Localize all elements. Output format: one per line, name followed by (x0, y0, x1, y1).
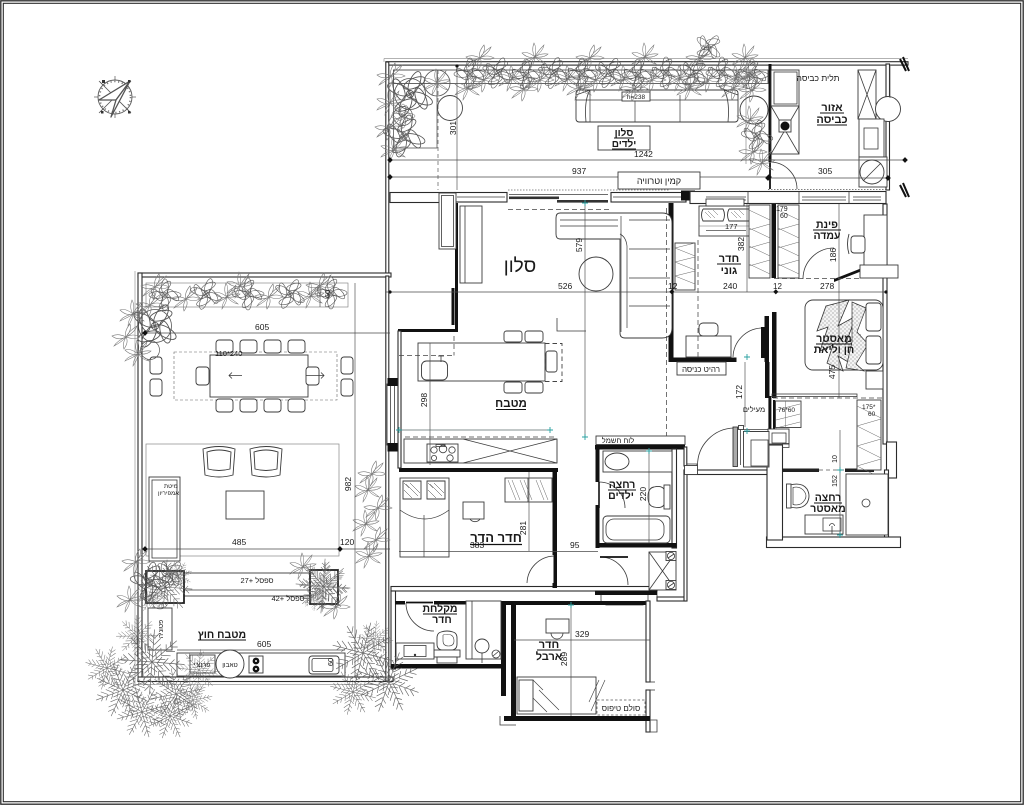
svg-text:605: 605 (255, 322, 269, 332)
svg-text:ספסל +27: ספסל +27 (240, 576, 273, 585)
svg-text:95: 95 (570, 540, 580, 550)
svg-text:חן וליאת: חן וליאת (814, 344, 854, 356)
svg-text:פרנצ'י: פרנצ'י (194, 662, 210, 669)
svg-text:186: 186 (828, 248, 838, 262)
svg-text:175*: 175* (862, 404, 876, 411)
svg-text:240: 240 (723, 281, 737, 291)
svg-text:10: 10 (832, 455, 839, 463)
svg-text:12: 12 (773, 282, 782, 291)
svg-text:ילדים: ילדים (608, 490, 634, 502)
svg-text:סלון: סלון (504, 256, 536, 277)
svg-text:סלון: סלון (615, 127, 634, 139)
svg-text:פטוניה: פטוניה (158, 620, 165, 638)
svg-text:60: 60 (780, 213, 788, 220)
svg-text:298: 298 (419, 393, 429, 407)
svg-text:177: 177 (725, 222, 738, 231)
svg-text:937: 937 (572, 166, 586, 176)
svg-text:485: 485 (232, 537, 246, 547)
svg-text:152: 152 (832, 475, 839, 487)
svg-text:חדר: חדר (539, 639, 559, 651)
svg-text:לוח חשמל: לוח חשמל (602, 436, 634, 445)
svg-text:305: 305 (818, 166, 832, 176)
svg-text:חדר: חדר (432, 614, 452, 626)
svg-text:605: 605 (257, 639, 271, 649)
svg-text:חדר הדר: חדר הדר (470, 530, 522, 545)
svg-text:עמדה: עמדה (813, 230, 840, 242)
svg-text:220: 220 (638, 487, 648, 501)
svg-text:60: 60 (326, 658, 335, 666)
svg-text:מעילים: מעילים (743, 405, 765, 414)
svg-text:526: 526 (558, 281, 572, 291)
svg-text:982: 982 (343, 477, 353, 491)
svg-text:110*240: 110*240 (215, 349, 242, 358)
svg-text:תלית כביסה: תלית כביסה (797, 73, 840, 83)
svg-text:h=238: h=238 (627, 94, 646, 101)
svg-text:סולם טיפוס: סולם טיפוס (602, 704, 640, 713)
svg-text:מאסטר: מאסטר (810, 503, 845, 515)
svg-text:179: 179 (776, 206, 788, 213)
svg-text:301: 301 (448, 121, 458, 135)
svg-text:קמין וטרוויה: קמין וטרוויה (637, 176, 681, 186)
svg-text:60: 60 (868, 411, 876, 418)
svg-text:76*60: 76*60 (778, 407, 795, 414)
svg-text:מיטת: מיטת (164, 484, 178, 490)
svg-text:ספסל +42: ספסל +42 (271, 594, 304, 603)
svg-text:ילדים: ילדים (612, 138, 637, 150)
svg-text:329: 329 (575, 629, 589, 639)
svg-text:12: 12 (668, 281, 678, 291)
svg-text:579: 579 (574, 238, 584, 252)
svg-text:אמפיריון: אמפיריון (158, 491, 179, 497)
svg-text:278: 278 (820, 281, 834, 291)
svg-text:475: 475 (827, 365, 837, 379)
svg-text:גוני: גוני (721, 265, 738, 277)
svg-text:חדר: חדר (719, 253, 739, 265)
svg-text:טאבון: טאבון (222, 662, 238, 669)
svg-text:כביסה: כביסה (816, 114, 847, 126)
svg-text:120: 120 (340, 537, 354, 547)
svg-text:אזור: אזור (821, 102, 843, 114)
svg-text:382: 382 (736, 237, 746, 251)
svg-text:172: 172 (734, 385, 744, 399)
svg-text:ארבל: ארבל (536, 650, 563, 663)
svg-text:רהיט כניסה: רהיט כניסה (682, 365, 720, 374)
svg-text:1242: 1242 (634, 149, 653, 159)
svg-text:60: 60 (323, 290, 332, 298)
svg-text:מטבח חוץ: מטבח חוץ (198, 629, 246, 641)
svg-text:מטבח: מטבח (495, 398, 527, 410)
